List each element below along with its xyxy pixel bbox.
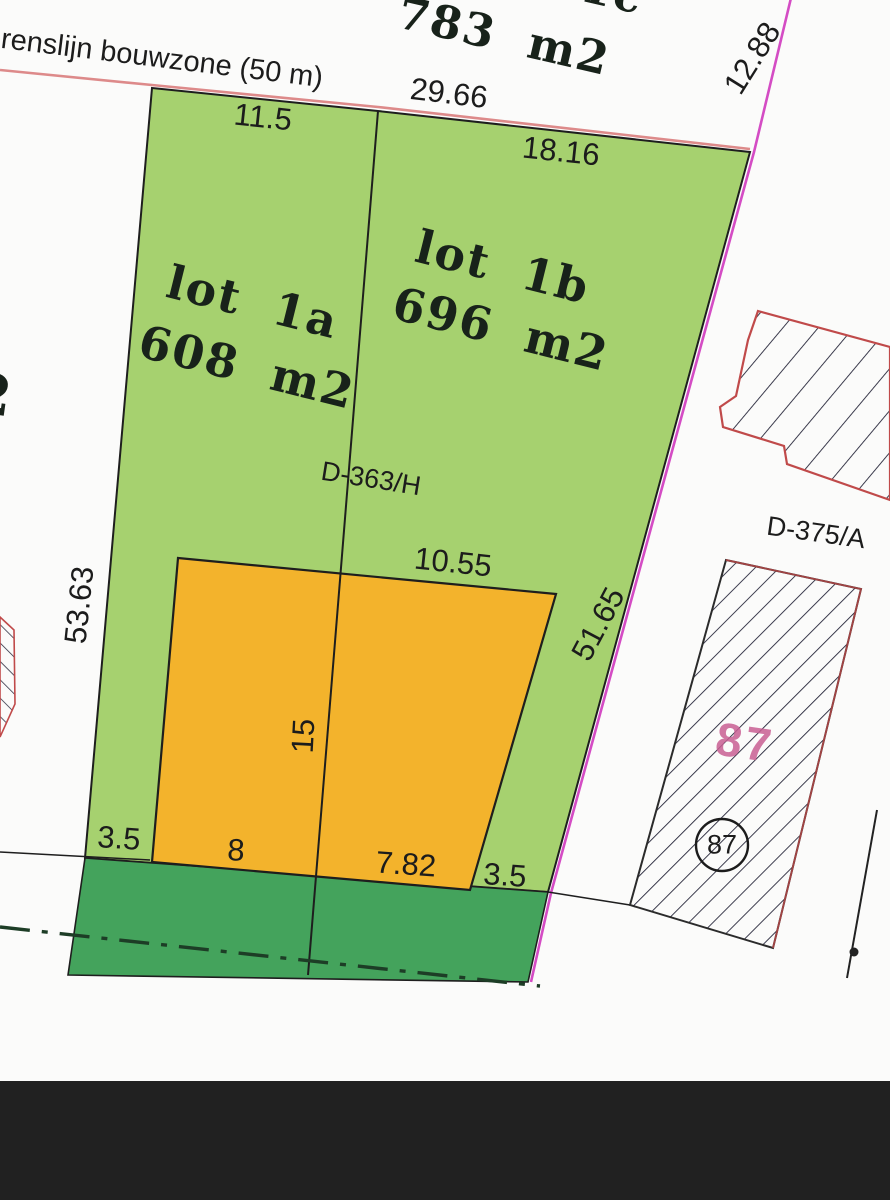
parcel-87-circled-label: 87: [707, 832, 737, 859]
measure-setback-left: 3.5: [96, 821, 141, 855]
measure-front-1b: 18.16: [521, 132, 601, 171]
measure-front-total: 29.66: [409, 73, 490, 113]
measure-setback-right: 3.5: [482, 858, 527, 892]
cadastral-plan: renslijn bouwzone (50 m) lot 1c 783 m2 l…: [0, 0, 890, 1200]
survey-point: [850, 948, 859, 957]
measure-front-1a: 11.5: [233, 99, 294, 136]
measure-zone-front-right: 7.82: [375, 846, 437, 881]
building-northeast-hatched: [720, 311, 890, 500]
measure-zone-rear: 10.55: [413, 543, 493, 582]
plan-drawing: [0, 0, 890, 1200]
boundary-connector-line: [548, 892, 630, 905]
measure-zone-front-left: 8: [227, 834, 246, 866]
footer-bar: [0, 1081, 890, 1200]
measure-side-left: 53.63: [60, 565, 99, 645]
parcel-87-label: 87: [713, 715, 777, 770]
measure-zone-depth: 15: [287, 718, 320, 754]
building-west-sliver-hatched: [0, 617, 15, 737]
